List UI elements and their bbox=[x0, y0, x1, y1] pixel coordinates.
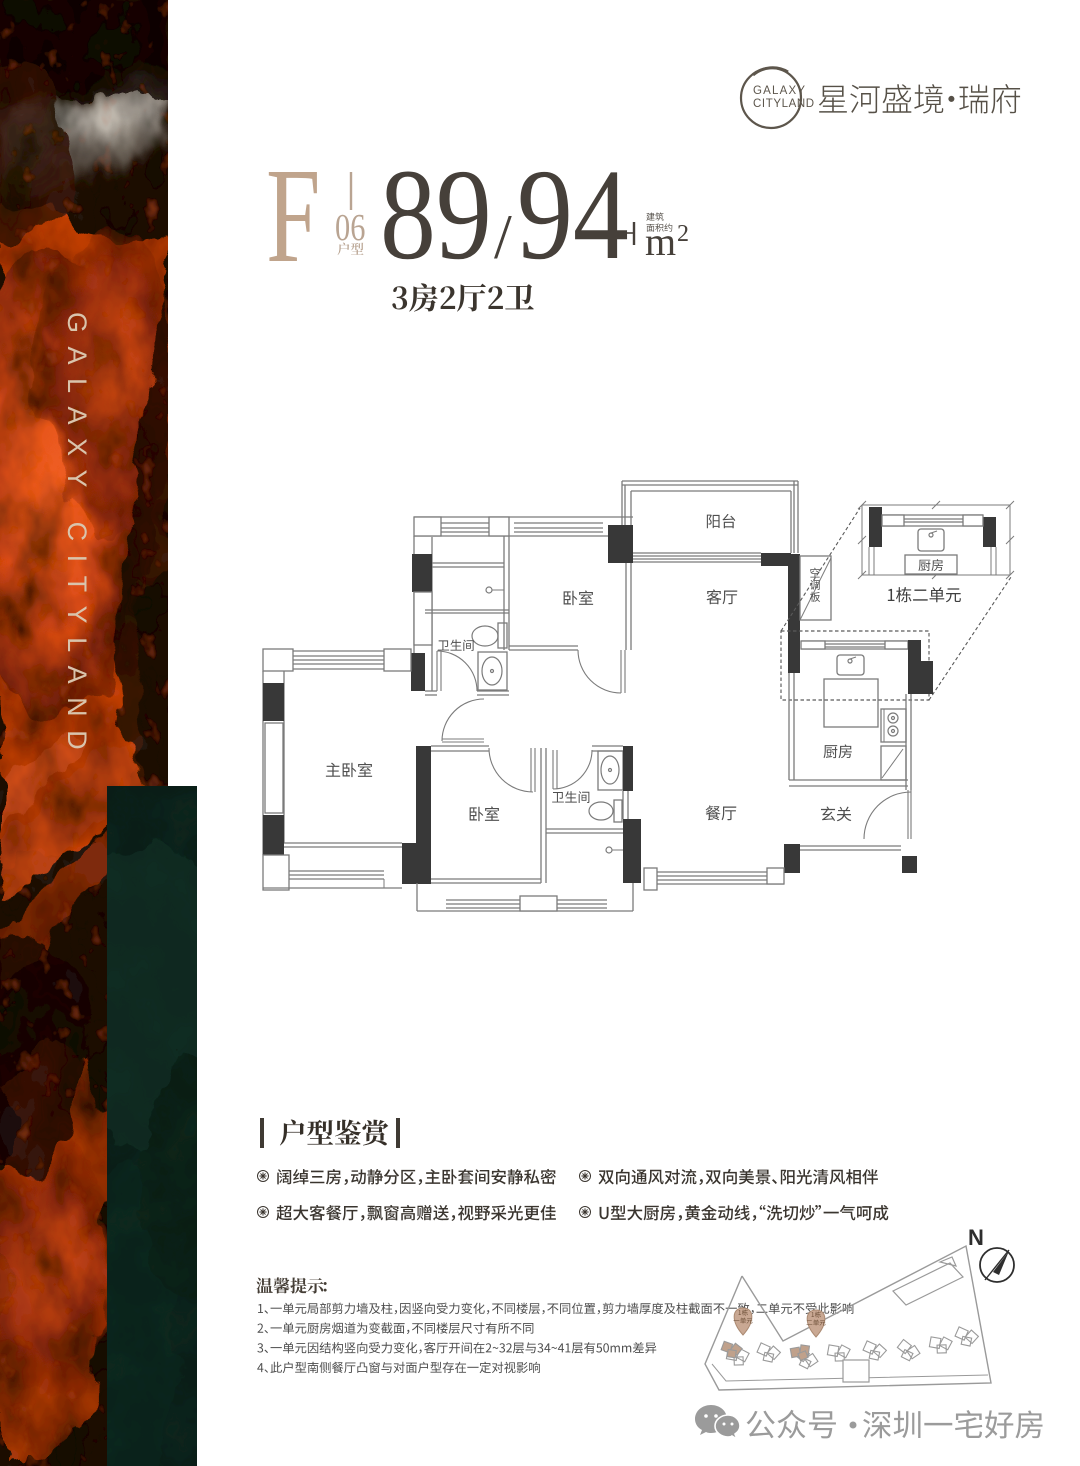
svg-text:/: / bbox=[494, 201, 512, 272]
svg-text:2: 2 bbox=[677, 221, 689, 247]
svg-text:GALAXY CITYLAND: GALAXY CITYLAND bbox=[62, 312, 92, 763]
svg-text:94: 94 bbox=[517, 143, 629, 287]
svg-text:06: 06 bbox=[335, 207, 365, 249]
svg-text:GALAXY: GALAXY bbox=[753, 85, 806, 97]
svg-text:N: N bbox=[968, 1225, 984, 1250]
svg-text:89: 89 bbox=[380, 143, 492, 287]
svg-text:m: m bbox=[645, 219, 676, 264]
svg-text:CITYLAND: CITYLAND bbox=[753, 98, 815, 110]
svg-text:F: F bbox=[266, 139, 320, 290]
